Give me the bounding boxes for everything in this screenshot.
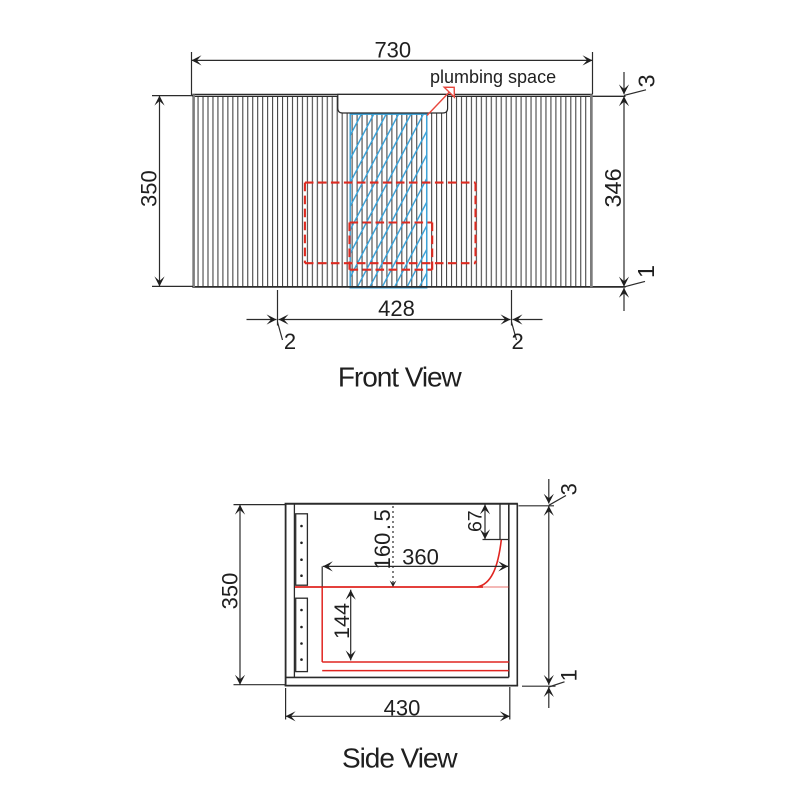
svg-text:350: 350 (136, 170, 161, 207)
svg-text:67: 67 (465, 510, 487, 532)
svg-text:730: 730 (374, 37, 411, 62)
svg-text:350: 350 (217, 573, 242, 610)
svg-text:144: 144 (330, 603, 354, 639)
svg-text:3: 3 (634, 74, 660, 87)
svg-text:Side View: Side View (342, 742, 458, 773)
svg-text:1: 1 (633, 265, 659, 278)
svg-text:428: 428 (378, 296, 415, 321)
svg-text:2: 2 (511, 329, 523, 354)
svg-text:346: 346 (600, 168, 626, 207)
svg-text:Front View: Front View (338, 362, 463, 393)
svg-text:2: 2 (284, 329, 296, 354)
svg-text:360: 360 (402, 545, 439, 570)
svg-text:160.5: 160.5 (370, 509, 395, 569)
svg-text:3: 3 (556, 483, 581, 495)
svg-text:1: 1 (557, 669, 582, 681)
svg-text:plumbing space: plumbing space (430, 67, 556, 87)
svg-text:430: 430 (384, 695, 421, 720)
